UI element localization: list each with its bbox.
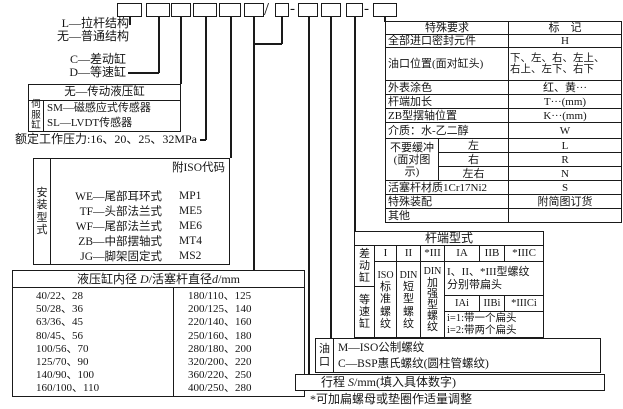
- mounting-row: WF—尾部法兰式 ME6: [52, 218, 227, 233]
- code-box-cylinder-type: [146, 3, 170, 17]
- bore-value: 140/90、100: [36, 369, 173, 382]
- dash-separator-2: -: [364, 2, 369, 17]
- bore-value: 280/180、200: [188, 343, 304, 356]
- special-row-mark: S: [509, 181, 622, 195]
- connector-line: [354, 16, 356, 232]
- connector-line: [180, 16, 182, 84]
- stroke-text: 行程 S/mm(填入具体数字): [296, 375, 604, 390]
- connector-line: [253, 16, 255, 270]
- special-row-name: ZB型摆轴位置: [386, 109, 509, 123]
- special-cushion-pos: 右: [439, 153, 509, 167]
- bore-value: 200/125、140: [188, 303, 304, 316]
- special-row-mark: 下、左、右、左上、 右上、左下、右下: [509, 48, 622, 81]
- special-row-mark: H: [509, 35, 622, 48]
- mounting-row: ZB—中部摆轴式 MT4: [52, 233, 227, 248]
- label-ordinary: 无—普通结构: [36, 30, 129, 43]
- bore-value: 50/28、36: [36, 303, 173, 316]
- special-row-name: 活塞杆材质1Cr17Ni2: [386, 181, 509, 195]
- label-equal-speed: D—等速缸: [45, 66, 126, 79]
- bore-value: 360/220、250: [188, 369, 304, 382]
- dash-separator-1: -: [290, 2, 295, 17]
- servo-sensor-box: 无—传动液压缸 伺服缸 SM—磁感应式传感器 SL—LVDT传感器: [28, 84, 181, 132]
- bore-table-title: 液压缸内径 D/活塞杆直径d/mm: [13, 271, 304, 288]
- bore-value: 63/36、45: [36, 316, 173, 329]
- connector-line: [253, 43, 282, 45]
- connector-line: [205, 16, 207, 140]
- code-box-structure: [117, 3, 142, 17]
- special-row-mark: K···(mm): [509, 109, 622, 123]
- mounting-iso-note: 附ISO代码: [172, 162, 225, 175]
- bore-value: 220/140、160: [188, 316, 304, 329]
- mounting-type-box: 安装型式 附ISO代码 WE—尾部耳环式 MP1 TF—头部法兰式 ME5 WF…: [33, 158, 230, 265]
- rod-end-side-differential: 差动缸: [354, 245, 375, 287]
- connector-line: [158, 16, 160, 73]
- rod-end-subhead-1: IAi: [444, 295, 480, 312]
- footnote: *可加扁螺母或垫圈作适量调整: [310, 393, 472, 406]
- stroke-box: 行程 S/mm(填入具体数字): [295, 374, 605, 391]
- mounting-row: WE—尾部耳环式 MP1: [52, 188, 227, 203]
- code-box-mounting: [219, 3, 241, 17]
- code-box-port: [321, 3, 341, 17]
- servo-side-label: 伺服缸: [29, 101, 44, 131]
- special-row-name: 介质：水-乙二醇: [386, 123, 509, 139]
- rod-end-side-equal-speed: 等速缸: [354, 286, 375, 338]
- special-row-mark: W: [509, 123, 622, 139]
- rod-end-head-2: II: [396, 245, 421, 262]
- connector-line: [230, 16, 232, 158]
- rod-end-col-iso: ISO标准螺纹: [374, 261, 397, 338]
- bore-value: 180/110、125: [188, 290, 304, 303]
- special-cushion-mark: R: [509, 153, 622, 167]
- special-cushion-mark: N: [509, 167, 622, 181]
- special-header-mark: 标 记: [509, 22, 622, 35]
- mounting-row: JG—脚架固定式 MS2: [52, 248, 227, 263]
- oil-port-row-c: C—BSP惠氏螺纹(圆柱管螺纹): [338, 356, 489, 372]
- connector-line: [129, 16, 131, 25]
- special-row-name: 特殊装配: [386, 195, 509, 209]
- bore-value: 125/70、90: [36, 356, 173, 369]
- special-row-name: 杆端加长: [386, 95, 509, 109]
- bore-value: 250/160、180: [188, 330, 304, 343]
- code-box-special: [373, 3, 397, 17]
- special-cushion-pos: 左: [439, 139, 509, 153]
- rod-end-note-i-values: i=1:带一个扁头i=2:带两个扁头: [444, 311, 544, 338]
- rod-end-right-head-2: IIB: [479, 245, 505, 262]
- special-row-name: 外表涂色: [386, 81, 509, 95]
- oil-port-row-m: M—ISO公制螺纹: [338, 340, 489, 356]
- mounting-row: TF—头部法兰式 ME5: [52, 203, 227, 218]
- code-box-rod-end: [346, 3, 363, 17]
- code-box-pressure: [193, 3, 217, 17]
- bore-value: 100/56、70: [36, 343, 173, 356]
- code-box-stroke: [298, 3, 318, 17]
- special-row-name: 其他: [386, 209, 509, 223]
- special-row-name: 全部进口密封元件: [386, 35, 509, 48]
- special-row-name: 油口位置(面对缸头): [386, 48, 509, 81]
- connector-line: [128, 72, 159, 74]
- slash-separator: /: [264, 0, 269, 18]
- servo-row-sl: SL—LVDT传感器: [44, 116, 180, 131]
- rod-end-head-1: I: [374, 245, 397, 262]
- code-box-bore: [244, 3, 264, 17]
- special-header-name: 特殊要求: [386, 22, 509, 35]
- servo-row-sm: SM—磁感应式传感器: [44, 101, 180, 116]
- connector-line: [281, 16, 283, 44]
- model-code-diagram: / - - L—拉杆结构 无—普通结构 C—差动缸 D—等速缸 额定工作压力:1…: [0, 0, 623, 409]
- rod-end-right-head-3: *IIIC: [504, 245, 544, 262]
- bore-rod-table: 液压缸内径 D/活塞杆直径d/mm 40/22、28 50/28、36 63/3…: [12, 270, 305, 397]
- bore-column-left: 40/22、28 50/28、36 63/36、45 80/45、56 100/…: [13, 288, 173, 396]
- rod-end-subhead-2: IIBi: [479, 295, 505, 312]
- special-cushion-mark: L: [509, 139, 622, 153]
- rod-end-title: 杆端型式: [354, 231, 544, 246]
- rod-end-note-flat-head: I、II、*III型螺纹分别带扁头: [444, 261, 544, 296]
- bore-value: 80/45、56: [36, 330, 173, 343]
- code-box-rod-diameter: [275, 3, 289, 17]
- connector-line: [330, 16, 332, 338]
- rod-end-col-din-reinforced: DIN加强型螺纹: [420, 261, 445, 338]
- special-requirements-table: 特殊要求标 记 全部进口密封元件H 油口位置(面对缸头) 下、左、右、左上、 右…: [385, 21, 622, 223]
- special-cushion-pos: 左右: [439, 167, 509, 181]
- rod-end-head-3: *III: [420, 245, 445, 262]
- rod-end-subhead-3: *IIICi: [504, 295, 544, 312]
- code-box-sensor: [171, 3, 191, 17]
- special-row-mark: 红、黄···: [509, 81, 622, 95]
- label-rated-pressure: 额定工作压力:16、20、25、32MPa: [15, 133, 197, 146]
- special-row-mark: [509, 209, 622, 223]
- mounting-side-label: 安装型式: [34, 159, 51, 264]
- bore-value: 160/100、110: [36, 382, 173, 395]
- connector-line: [200, 139, 206, 141]
- rod-end-col-din-short: DIN短型螺纹: [396, 261, 421, 338]
- bore-value: 320/200、220: [188, 356, 304, 369]
- special-cushion-label: 不要缓冲 (面对图示): [386, 139, 439, 181]
- oil-port-side-label: 油口: [316, 339, 334, 372]
- oil-port-box: 油口 M—ISO公制螺纹 C—BSP惠氏螺纹(圆柱管螺纹): [315, 338, 601, 373]
- bore-value: 400/250、280: [188, 382, 304, 395]
- bore-column-right: 180/110、125 200/125、140 220/140、160 250/…: [173, 288, 304, 396]
- bore-value: 40/22、28: [36, 290, 173, 303]
- special-row-mark: 附简图订货: [509, 195, 622, 209]
- rod-end-right-head-1: IA: [444, 245, 480, 262]
- servo-row-top: 无—传动液压缸: [29, 85, 180, 101]
- connector-line: [308, 16, 310, 374]
- special-row-mark: T···(mm): [509, 95, 622, 109]
